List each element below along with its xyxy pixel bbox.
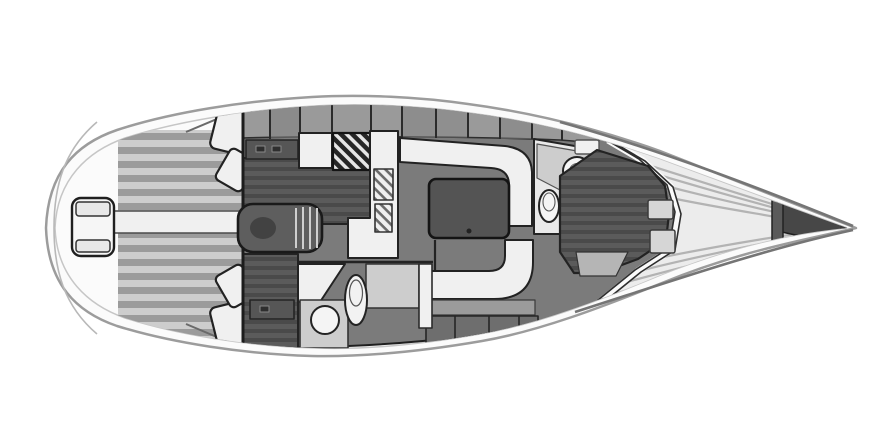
shelf-handle	[260, 306, 269, 312]
boat-floor-plan-page	[0, 0, 890, 446]
galley-sink	[374, 169, 393, 200]
sailboat-floor-plan	[0, 0, 890, 446]
galley-counter-block	[299, 133, 332, 168]
salon-bench-back	[428, 300, 535, 315]
galley-sink-2	[375, 204, 392, 232]
forward-head-toilet	[539, 190, 559, 222]
shelf-handle	[256, 146, 265, 152]
aft-head-door	[419, 264, 432, 328]
transom-ladder-step-top	[76, 202, 110, 216]
aft-head-sink	[311, 306, 339, 334]
salon-table-leg	[467, 229, 472, 234]
shelf-handle	[272, 146, 281, 152]
starboard-aft-cabin-shelf	[250, 300, 294, 319]
cockpit-bridge-deck	[112, 211, 248, 233]
transom-ladder-step-bottom	[76, 240, 110, 252]
v-berth-foot-locker	[648, 200, 673, 219]
v-berth-foot-locker-2	[650, 230, 675, 253]
galley-stove	[333, 133, 370, 170]
companionway-engine-hatch	[250, 217, 276, 239]
aft-head-toilet	[345, 275, 367, 325]
aft-head-counter	[366, 264, 419, 308]
